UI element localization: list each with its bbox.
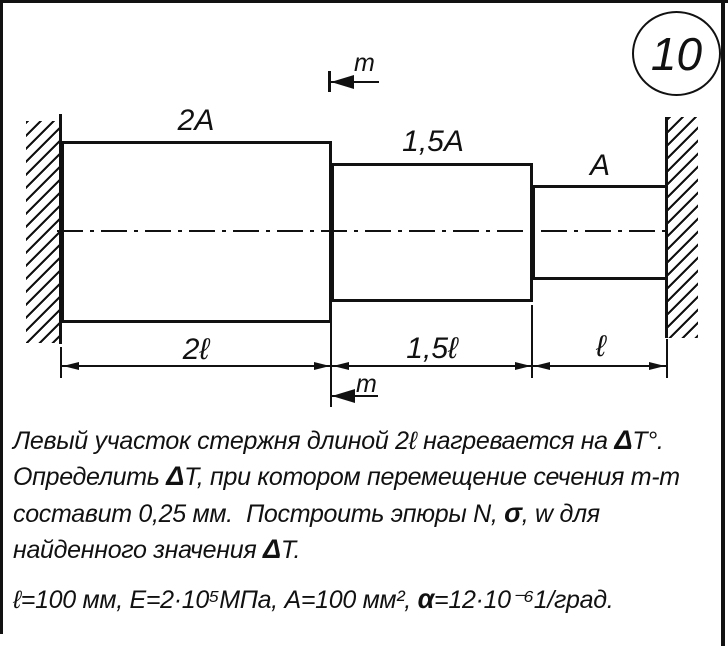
problem-statement-line-3: составит 0,25 мм. Построить эпюры N, σ, … bbox=[13, 499, 600, 529]
statement-text: T°. bbox=[632, 427, 663, 455]
extension-line-right bbox=[666, 339, 668, 378]
rod-section-A bbox=[532, 185, 668, 280]
statement-text: найденного значения bbox=[13, 536, 263, 564]
given-data-line: ℓ=100 мм, E=2·10⁵МПа, A=100 мм², α=12·10… bbox=[13, 585, 613, 615]
statement-text: T. bbox=[281, 536, 300, 564]
task-number: 10 bbox=[651, 27, 702, 81]
axis-centerline bbox=[57, 230, 673, 232]
statement-text: составит 0,25 мм. Построить эпюры N, bbox=[13, 500, 504, 528]
alpha-symbol: α bbox=[418, 584, 434, 614]
frame-border-right bbox=[721, 0, 725, 646]
section-label-m-top: m bbox=[354, 51, 375, 76]
dimension-line bbox=[61, 365, 667, 367]
problem-statement-line-4: найденного значения ΔT. bbox=[13, 535, 300, 565]
area-label-1-5A: 1,5A bbox=[402, 127, 464, 157]
section-arrow-icon-top bbox=[331, 75, 354, 89]
frame-border-left bbox=[0, 0, 3, 634]
area-label-A: A bbox=[590, 151, 610, 181]
problem-statement-line-2: Определить ΔT, при котором перемещение с… bbox=[13, 462, 680, 492]
dim-arrow-icon bbox=[515, 362, 531, 370]
wall-hatch-right bbox=[668, 117, 698, 338]
given-text: ℓ=100 мм, E=2·10⁵МПа, A=100 мм², bbox=[13, 586, 418, 614]
delta-symbol: Δ bbox=[614, 425, 632, 455]
section-label-m-bottom: m bbox=[356, 372, 377, 397]
statement-text: Определить bbox=[13, 463, 166, 491]
statement-text: T, при котором перемещение сечения m-m bbox=[184, 463, 680, 491]
dim-arrow-icon bbox=[63, 362, 79, 370]
dim-arrow-icon bbox=[314, 362, 330, 370]
task-number-badge: 10 bbox=[632, 11, 721, 96]
length-label-l: ℓ bbox=[596, 332, 606, 362]
dim-arrow-icon bbox=[534, 362, 550, 370]
extension-line-mid2 bbox=[531, 305, 533, 378]
rod-section-1-5A bbox=[331, 163, 533, 302]
dim-arrow-icon bbox=[649, 362, 665, 370]
dim-arrow-icon bbox=[333, 362, 349, 370]
statement-text: , w для bbox=[522, 500, 600, 528]
extension-line-left bbox=[60, 347, 62, 378]
frame-border-top bbox=[0, 0, 728, 3]
delta-symbol: Δ bbox=[263, 534, 281, 564]
length-label-2l: 2ℓ bbox=[183, 335, 209, 365]
wall-hatch-left bbox=[26, 121, 60, 343]
statement-text: Левый участок стержня длиной 2ℓ нагревае… bbox=[13, 427, 614, 455]
section-arrow-icon-bottom bbox=[332, 389, 355, 403]
worksheet-page: 10 2A 1,5A A 2ℓ 1,5ℓ ℓ m m Левый участок… bbox=[0, 0, 728, 664]
area-label-2A: 2A bbox=[178, 106, 215, 136]
sigma-symbol: σ bbox=[504, 498, 522, 528]
delta-symbol: Δ bbox=[166, 461, 184, 491]
problem-statement-line-1: Левый участок стержня длиной 2ℓ нагревае… bbox=[13, 426, 664, 456]
given-text: =12·10⁻⁶1/град. bbox=[434, 586, 613, 614]
length-label-1-5l: 1,5ℓ bbox=[406, 334, 457, 364]
